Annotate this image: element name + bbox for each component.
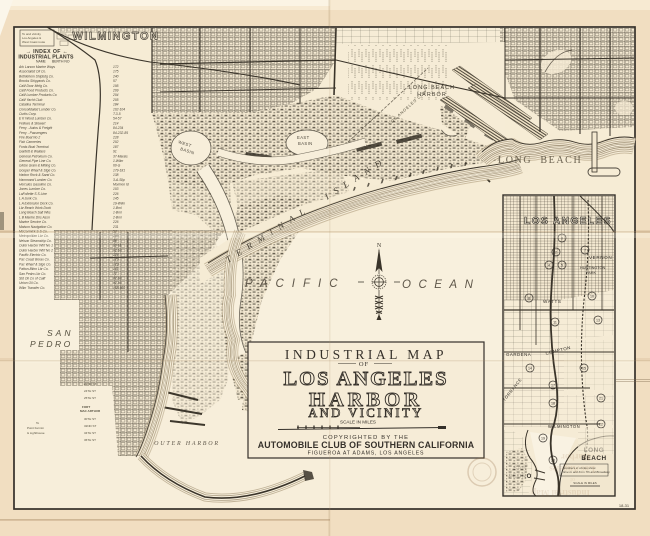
svg-text:11: 11 <box>553 320 557 324</box>
svg-text:10: 10 <box>590 294 594 298</box>
svg-text:SCALE IN MILES: SCALE IN MILES <box>573 481 597 485</box>
svg-text:VERNON: VERNON <box>589 255 612 260</box>
svg-text:21: 21 <box>599 396 603 400</box>
svg-text:14: 14 <box>528 366 532 370</box>
svg-text:22ND ST: 22ND ST <box>84 382 97 386</box>
svg-text:30TH ST: 30TH ST <box>84 417 96 421</box>
svg-text:To: To <box>36 421 40 425</box>
svg-text:SAN: SAN <box>47 328 73 338</box>
svg-text:West Coast route: West Coast route <box>22 40 45 44</box>
svg-text:LOS ANGELES: LOS ANGELES <box>284 368 449 390</box>
svg-text:Los Angeles: Los Angeles <box>549 464 595 474</box>
svg-text:PARK: PARK <box>586 271 597 275</box>
svg-text:LONG BEACH: LONG BEACH <box>498 155 582 166</box>
svg-text:NAME: NAME <box>36 60 47 64</box>
svg-text:BERTH NO: BERTH NO <box>52 60 70 64</box>
svg-text:N: N <box>377 243 382 249</box>
svg-text:17: 17 <box>551 383 555 387</box>
svg-text:24TH ST: 24TH ST <box>84 389 96 393</box>
svg-text:WILMINGTON: WILMINGTON <box>548 424 580 429</box>
svg-text:5: 5 <box>561 263 563 267</box>
svg-text:HUNTINGTON: HUNTINGTON <box>580 266 605 270</box>
svg-text:18-31: 18-31 <box>619 503 630 508</box>
svg-text:34TH ST: 34TH ST <box>84 431 96 435</box>
svg-text:BASIN: BASIN <box>298 141 313 146</box>
svg-text:OCEAN: OCEAN <box>402 279 480 291</box>
svg-text:OF: OF <box>359 361 369 368</box>
svg-text:& Lighthouse: & Lighthouse <box>27 431 45 435</box>
svg-text:Harbor: Harbor <box>561 452 590 462</box>
svg-text:SCALE IN MILES: SCALE IN MILES <box>340 420 376 425</box>
svg-text:FIGUEROA AT ADAMS, LOS AN: FIGUEROA AT ADAMS, LOS ANGELES <box>308 451 425 457</box>
svg-text:Industrial Map: Industrial Map <box>531 488 590 498</box>
svg-text:36TH ST: 36TH ST <box>84 438 96 442</box>
svg-text:EAST: EAST <box>297 135 310 140</box>
svg-text:Point Fermin: Point Fermin <box>27 426 44 430</box>
svg-text:AND VICINITY: AND VICINITY <box>308 406 424 420</box>
svg-text:INDUSTRIAL MAP: INDUSTRIAL MAP <box>285 347 447 362</box>
svg-text:32ND ST: 32ND ST <box>84 424 97 428</box>
svg-text:7: 7 <box>584 248 586 252</box>
svg-text:of: of <box>570 476 575 483</box>
svg-text:19: 19 <box>541 436 545 440</box>
svg-text:PEDRO: PEDRO <box>30 339 73 349</box>
svg-text:WILMINGTON: WILMINGTON <box>73 31 160 43</box>
svg-text:15: 15 <box>582 366 586 370</box>
svg-text:2: 2 <box>555 250 557 254</box>
svg-text:13: 13 <box>596 318 600 322</box>
svg-text:WATTS: WATTS <box>543 299 562 304</box>
svg-text:25TH ST: 25TH ST <box>84 396 96 400</box>
svg-text:18: 18 <box>551 401 555 405</box>
svg-text:4: 4 <box>548 263 550 267</box>
svg-text:AUTOMOBILE CLUB OF SOUTHERN CA: AUTOMOBILE CLUB OF SOUTHERN CALIFORNIA <box>258 440 475 450</box>
svg-text:LOS ANGELES: LOS ANGELES <box>524 216 612 227</box>
svg-text:8: 8 <box>528 296 530 300</box>
svg-text:GARDENA: GARDENA <box>506 352 531 357</box>
svg-text:MAC ARTHUR: MAC ARTHUR <box>80 409 101 413</box>
svg-text:22: 22 <box>599 422 603 426</box>
svg-text:23: 23 <box>551 458 555 462</box>
svg-text:OUTER HARBOR: OUTER HARBOR <box>154 441 220 447</box>
svg-text:LONG BEACH: LONG BEACH <box>409 85 455 91</box>
